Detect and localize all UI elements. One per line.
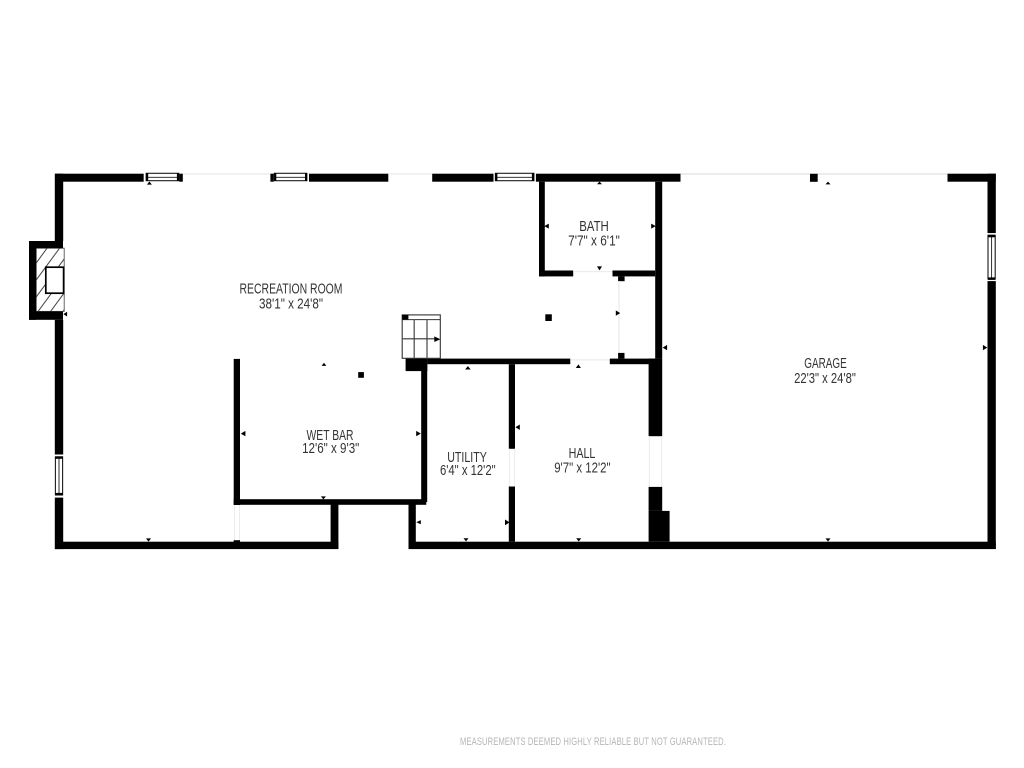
svg-text:22'3" x 24'8": 22'3" x 24'8" — [794, 370, 856, 387]
svg-text:7'7" x 6'1": 7'7" x 6'1" — [568, 232, 620, 249]
svg-text:12'6" x 9'3": 12'6" x 9'3" — [302, 440, 359, 457]
svg-text:9'7" x 12'2": 9'7" x 12'2" — [554, 460, 610, 477]
svg-text:6'4" x 12'2": 6'4" x 12'2" — [440, 462, 496, 479]
svg-text:MEASUREMENTS DEEMED HIGHLY REL: MEASUREMENTS DEEMED HIGHLY RELIABLE BUT … — [460, 736, 726, 748]
svg-text:38'1" x 24'8": 38'1" x 24'8" — [259, 296, 323, 313]
